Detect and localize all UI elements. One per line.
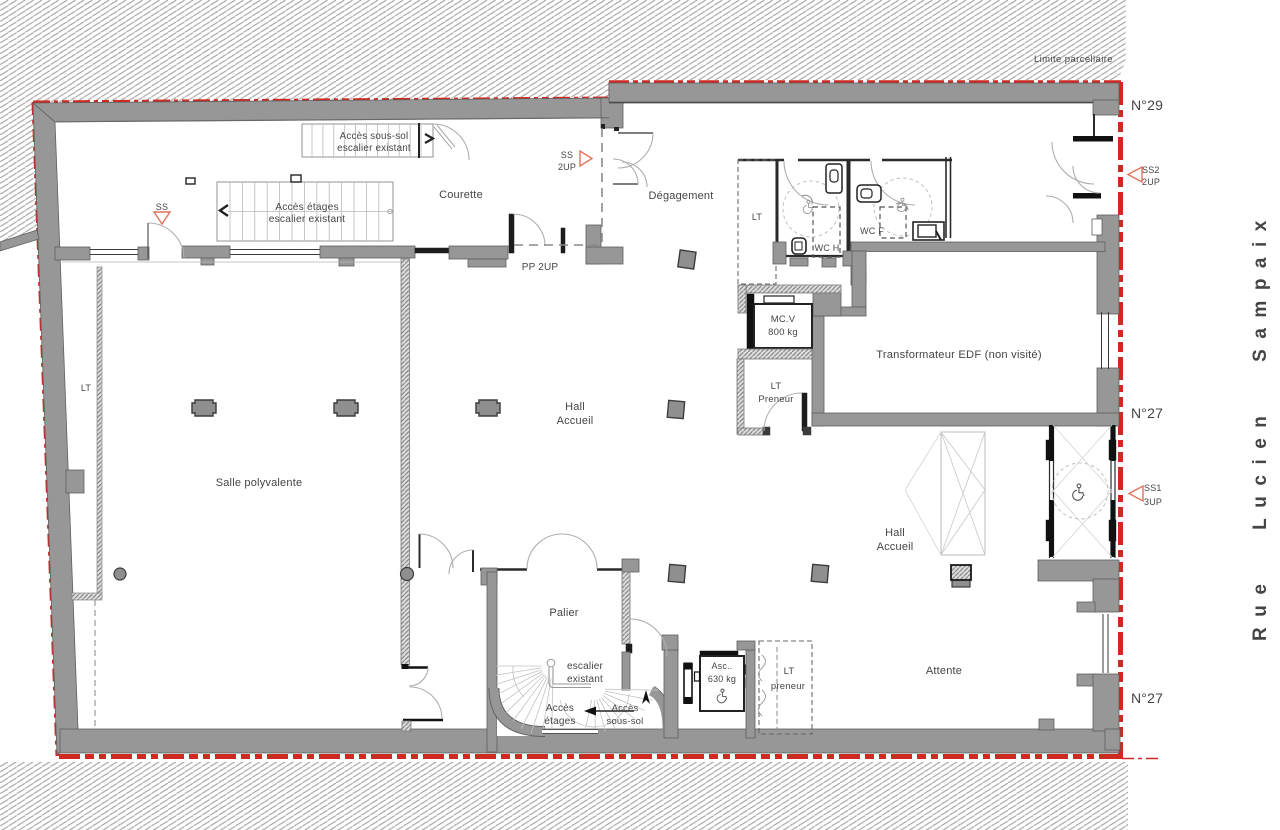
svg-text:Asc..: Asc.. bbox=[711, 661, 732, 671]
svg-text:800 kg: 800 kg bbox=[768, 327, 798, 338]
svg-text:Salle polyvalente: Salle polyvalente bbox=[216, 477, 303, 489]
svg-text:WC H: WC H bbox=[815, 243, 840, 253]
svg-text:N°27: N°27 bbox=[1131, 690, 1163, 706]
svg-text:escalier existant: escalier existant bbox=[337, 143, 411, 154]
svg-text:2UP: 2UP bbox=[1142, 177, 1160, 187]
svg-text:Courette: Courette bbox=[439, 189, 483, 201]
svg-text:LT: LT bbox=[752, 212, 763, 222]
svg-text:Accès étages: Accès étages bbox=[275, 202, 339, 213]
svg-text:3UP: 3UP bbox=[1144, 497, 1162, 507]
svg-text:SS2: SS2 bbox=[1142, 165, 1160, 175]
svg-text:Limite parcellaire: Limite parcellaire bbox=[1034, 54, 1113, 65]
svg-text:630 kg: 630 kg bbox=[708, 674, 736, 684]
svg-text:N°29: N°29 bbox=[1131, 97, 1163, 113]
svg-text:étages: étages bbox=[544, 716, 575, 727]
svg-text:Accès: Accès bbox=[546, 703, 574, 714]
svg-text:SS: SS bbox=[156, 202, 168, 212]
svg-text:LT: LT bbox=[771, 381, 782, 392]
svg-text:WC F: WC F bbox=[860, 226, 884, 236]
svg-text:Accès sous-sol: Accès sous-sol bbox=[340, 131, 409, 142]
svg-text:sous-sol: sous-sol bbox=[607, 716, 644, 727]
svg-text:Accès: Accès bbox=[612, 703, 639, 714]
svg-text:Hall: Hall bbox=[565, 401, 585, 413]
svg-text:Transformateur EDF (non visité: Transformateur EDF (non visité) bbox=[876, 349, 1042, 361]
svg-text:Rue Lucien Sampaix: Rue Lucien Sampaix bbox=[1250, 210, 1271, 641]
svg-text:LT: LT bbox=[784, 666, 795, 677]
svg-text:Accueil: Accueil bbox=[877, 541, 914, 553]
svg-text:SS: SS bbox=[561, 150, 573, 160]
svg-text:Accueil: Accueil bbox=[557, 415, 594, 427]
svg-text:PP 2UP: PP 2UP bbox=[522, 262, 559, 273]
svg-text:SS1: SS1 bbox=[1144, 483, 1162, 493]
svg-text:Dégagement: Dégagement bbox=[649, 190, 714, 202]
svg-text:Preneur: Preneur bbox=[758, 394, 793, 405]
svg-text:existant: existant bbox=[567, 674, 603, 685]
svg-text:MC.V: MC.V bbox=[771, 314, 796, 325]
svg-text:escalier existant: escalier existant bbox=[269, 214, 345, 225]
svg-text:preneur: preneur bbox=[771, 681, 805, 692]
svg-text:Hall: Hall bbox=[885, 527, 905, 539]
svg-text:N°27: N°27 bbox=[1131, 405, 1163, 421]
svg-text:escalier: escalier bbox=[567, 661, 604, 672]
svg-text:Palier: Palier bbox=[549, 607, 578, 619]
svg-text:2UP: 2UP bbox=[558, 162, 576, 172]
svg-text:Attente: Attente bbox=[926, 665, 962, 677]
svg-text:LT: LT bbox=[81, 383, 92, 393]
